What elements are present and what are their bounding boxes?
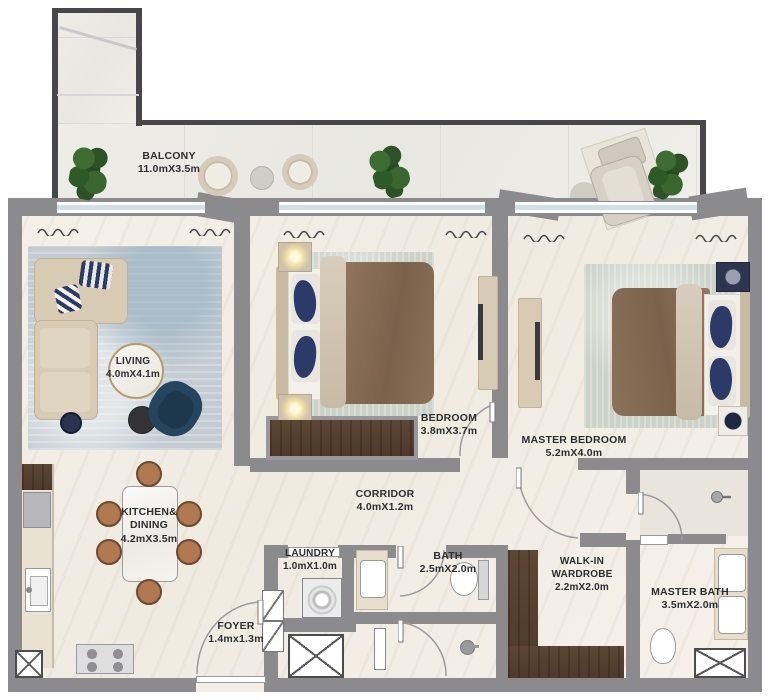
balcony-wall-left	[52, 8, 58, 206]
window-living	[56, 201, 206, 214]
room-dims: 3.8mX3.7m	[404, 425, 494, 438]
entrance-threshold	[196, 676, 266, 683]
striped-pillow	[78, 260, 113, 290]
curtain-icon	[282, 226, 326, 238]
master-tv-screen	[535, 322, 540, 380]
wardrobe	[270, 420, 414, 456]
dining-chair	[136, 461, 162, 487]
checker-pillow	[54, 284, 83, 314]
room-name: MASTER BEDROOM	[514, 434, 634, 447]
faucet-icon	[26, 587, 32, 593]
sofa-cushion	[40, 328, 90, 368]
room-label-walk-in-wardrobe: WALK-IN WARDROBE 2.2mX2.0m	[540, 556, 624, 594]
room-dims: 4.0mX1.2m	[335, 501, 435, 514]
master-headboard	[740, 290, 750, 418]
wall-bottom	[8, 678, 762, 692]
room-label-master-bath: MASTER BATH 3.5mX2.0m	[638, 586, 742, 613]
door-swing-icon-master-bath	[638, 492, 684, 542]
curtain-icon	[444, 226, 488, 238]
dining-chair	[136, 579, 162, 605]
room-label-laundry: LAUNDRY 1.0mX1.0m	[272, 548, 348, 574]
master-toilet-bowl	[650, 628, 676, 664]
room-label-bath: BATH 2.5mX2.0m	[398, 550, 498, 577]
pouf	[60, 412, 82, 434]
wall-wardrobe-masterbath-upper	[626, 458, 640, 494]
stove	[76, 644, 134, 674]
room-label-balcony: BALCONY 11.0mX3.5m	[104, 150, 234, 177]
door-swing-icon-master-bedroom	[516, 466, 582, 540]
curtain-icon	[36, 224, 80, 236]
wall-vestibule-bottom	[580, 533, 626, 547]
wall-living-bedroom	[234, 216, 250, 466]
room-label-bedroom: BEDROOM 3.8mX3.7m	[404, 412, 494, 439]
room-name: CORRIDOR	[335, 488, 435, 501]
room-name: KITCHEN& DINING	[114, 506, 184, 533]
window-master	[514, 201, 698, 214]
foyer-closet	[262, 590, 284, 621]
bed-headboard	[276, 266, 288, 400]
curtain-icon	[188, 224, 232, 236]
nightstand-lamp	[278, 242, 312, 272]
wall-left	[8, 198, 22, 692]
room-name: BATH	[398, 550, 498, 563]
room-dims: 3.5mX2.0m	[638, 599, 742, 612]
balcony-wall-top	[136, 120, 706, 125]
room-name: LAUNDRY	[272, 548, 348, 561]
balcony-wall-right-upper	[136, 8, 142, 126]
room-dims: 4.2mX3.5m	[114, 533, 184, 546]
door-knob-stem	[470, 645, 479, 648]
room-dims: 1.4mx1.3m	[194, 633, 278, 646]
window-bedroom	[278, 201, 486, 214]
master-blanket	[676, 284, 702, 420]
shaft-icon	[288, 634, 344, 678]
room-dims: 5.2mX4.0m	[514, 447, 634, 460]
curtain-icon	[694, 230, 738, 242]
room-dims: 2.2mX2.0m	[540, 582, 624, 595]
wardrobe-closet-bottom	[508, 646, 624, 678]
wall-bedroom-bottom	[250, 458, 460, 472]
balcony-wall-top-upper	[52, 8, 142, 13]
room-name: BEDROOM	[404, 412, 494, 425]
room-name: WALK-IN WARDROBE	[540, 556, 624, 582]
curtain-icon	[522, 230, 566, 242]
balcony-chair	[282, 154, 318, 190]
sofa-cushion	[40, 372, 90, 412]
shower-head-icon	[710, 488, 732, 506]
room-label-corridor: CORRIDOR 4.0mX1.2m	[335, 488, 435, 515]
balcony-divider-line	[57, 94, 139, 96]
room-label-master-bedroom: MASTER BEDROOM 5.2mX4.0m	[514, 434, 634, 461]
wall-right	[748, 198, 762, 692]
bed-blanket	[320, 256, 346, 408]
floor-plan: BALCONY 11.0mX3.5m LIVING 4.0mX4.1m BEDR…	[0, 0, 768, 700]
balcony-side-table	[250, 166, 274, 190]
fridge	[23, 492, 51, 528]
door-swing-icon-hall	[398, 620, 450, 678]
master-nightstand-top	[716, 262, 750, 292]
room-name: BALCONY	[104, 150, 234, 163]
room-label-kitchen-dining: KITCHEN& DINING 4.2mX3.5m	[114, 506, 184, 546]
kitchen-cabinet	[22, 464, 52, 490]
room-label-foyer: FOYER 1.4mx1.3m	[194, 620, 278, 647]
room-dims: 1.0mX1.0m	[272, 561, 348, 574]
room-dims: 4.0mX4.1m	[90, 369, 176, 382]
bath-sink	[360, 560, 386, 598]
room-name: MASTER BATH	[638, 586, 742, 599]
room-dims: 2.5mX2.0m	[398, 563, 498, 576]
master-nightstand-bottom	[718, 406, 748, 436]
room-name: FOYER	[194, 620, 278, 633]
towel-radiator	[374, 628, 386, 670]
room-label-living: LIVING 4.0mX4.1m	[90, 356, 176, 382]
room-name: LIVING	[90, 356, 176, 369]
kitchen-sink-basin	[30, 576, 48, 606]
shaft-icon	[15, 650, 43, 678]
washing-machine	[302, 578, 342, 618]
shaft-icon	[694, 648, 746, 678]
room-dims: 11.0mX3.5m	[104, 163, 234, 176]
tv-screen	[478, 304, 483, 360]
